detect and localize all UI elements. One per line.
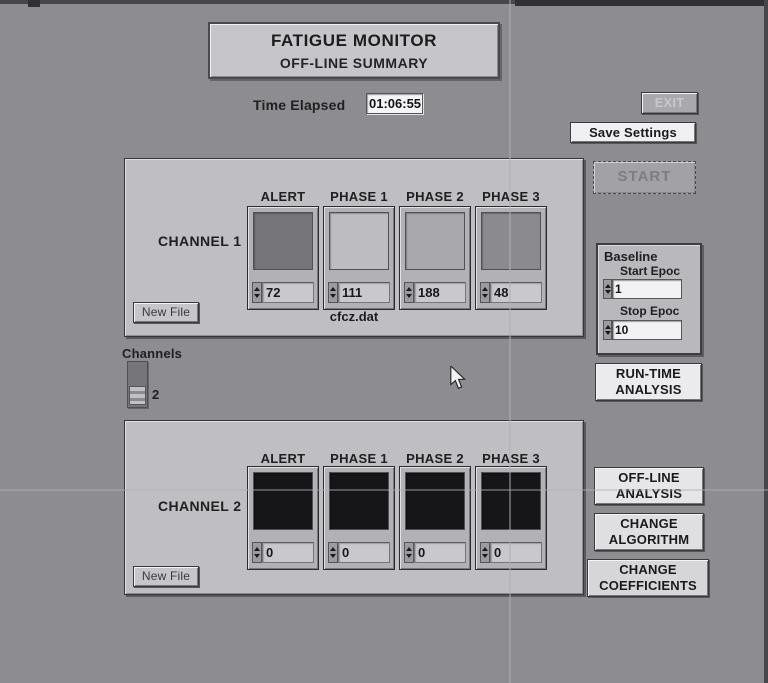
channels-slider-handle[interactable]: [129, 386, 146, 405]
spinner-up-icon[interactable]: [330, 547, 336, 551]
spinner-down-icon[interactable]: [254, 294, 260, 298]
title-box: FATIGUE MONITOR OFF-LINE SUMMARY: [208, 22, 500, 79]
screen-top-right-bar: [515, 0, 768, 6]
channel1-phase1-box: [329, 212, 389, 270]
channel2-alert-box: [253, 472, 313, 530]
spinner-up-icon[interactable]: [482, 287, 488, 291]
channel2-phase1-value[interactable]: 0: [338, 542, 390, 563]
channel2-phase1-box: [329, 472, 389, 530]
channel1-phase3-spinner[interactable]: 48: [480, 282, 542, 303]
channel1-phase2-spinner[interactable]: 188: [404, 282, 466, 303]
spinner-down-icon[interactable]: [254, 554, 260, 558]
spinner-down-icon[interactable]: [605, 290, 611, 294]
channel2-phase3-spinner[interactable]: 0: [480, 542, 542, 563]
channel2-phase3-value[interactable]: 0: [490, 542, 542, 563]
channel2-header-phase3: PHASE 3: [473, 451, 549, 466]
channel2-header-phase1: PHASE 1: [321, 451, 397, 466]
spinner-arrows[interactable]: [328, 282, 338, 303]
channels-label: Channels: [122, 346, 182, 361]
channel1-phase2-box: [405, 212, 465, 270]
channel2-alert-value[interactable]: 0: [262, 542, 314, 563]
spinner-up-icon[interactable]: [605, 325, 611, 329]
spinner-down-icon[interactable]: [482, 294, 488, 298]
spinner-up-icon[interactable]: [605, 284, 611, 288]
chann2-phase1-spinner[interactable]: 0: [328, 542, 390, 563]
channel1-header-phase2: PHASE 2: [397, 189, 473, 204]
spinner-up-icon[interactable]: [254, 287, 260, 291]
spinner-down-icon[interactable]: [605, 331, 611, 335]
channels-value: 2: [152, 387, 159, 402]
channel1-phase3-indicator: 48: [475, 206, 547, 310]
change-algorithm-button[interactable]: CHANGE ALGORITHM: [594, 513, 704, 551]
baseline-group: Baseline Start Epoc 1 Stop Epoc 10: [596, 243, 702, 355]
channel2-new-file-button[interactable]: New File: [133, 566, 199, 587]
app-title: FATIGUE MONITOR: [210, 31, 498, 51]
run-time-analysis-button[interactable]: RUN-TIME ANALYSIS: [595, 363, 702, 401]
spinner-arrows[interactable]: [480, 282, 490, 303]
spinner-down-icon[interactable]: [406, 554, 412, 558]
spinner-arrows[interactable]: [480, 542, 490, 563]
baseline-stop-label: Stop Epoc: [620, 304, 679, 318]
channel2-phase3-box: [481, 472, 541, 530]
channels-slider[interactable]: [127, 361, 148, 408]
channel1-phase1-value[interactable]: 111: [338, 282, 390, 303]
start-button[interactable]: START: [593, 161, 696, 194]
channel1-phase1-indicator: 111: [323, 206, 395, 310]
channel1-alert-box: [253, 212, 313, 270]
spinner-up-icon[interactable]: [406, 287, 412, 291]
spinner-up-icon[interactable]: [482, 547, 488, 551]
spinner-arrows[interactable]: [603, 279, 612, 299]
channel2-phase3-indicator: 0: [475, 466, 547, 570]
baseline-start-spinner[interactable]: 1: [603, 279, 682, 299]
channel1-filename: cfcz.dat: [125, 309, 583, 324]
channel2-alert-indicator: 0: [247, 466, 319, 570]
channel1-phase3-value[interactable]: 48: [490, 282, 542, 303]
baseline-title: Baseline: [604, 249, 657, 264]
channel1-panel: ALERT PHASE 1 PHASE 2 PHASE 3 CHANNEL 1 …: [124, 158, 584, 337]
channel2-phase2-spinner[interactable]: 0: [404, 542, 466, 563]
spinner-down-icon[interactable]: [482, 554, 488, 558]
baseline-start-value[interactable]: 1: [612, 279, 682, 299]
channel2-label: CHANNEL 2: [158, 498, 241, 514]
spinner-arrows[interactable]: [603, 320, 612, 340]
time-elapsed-label: Time Elapsed: [253, 97, 345, 113]
channel1-phase2-indicator: 188: [399, 206, 471, 310]
spinner-down-icon[interactable]: [406, 294, 412, 298]
channel2-phase1-indicator: 0: [323, 466, 395, 570]
spinner-arrows[interactable]: [404, 282, 414, 303]
screen-top-notch: [28, 0, 40, 7]
baseline-stop-value[interactable]: 10: [612, 320, 682, 340]
change-coefficients-button[interactable]: CHANGE COEFFICIENTS: [587, 559, 709, 597]
channel2-phase2-box: [405, 472, 465, 530]
exit-button[interactable]: EXIT: [641, 92, 698, 114]
channel1-alert-value[interactable]: 72: [262, 282, 314, 303]
channel1-phase1-spinner[interactable]: 111: [328, 282, 390, 303]
spinner-arrows[interactable]: [252, 282, 262, 303]
channel2-header-phase2: PHASE 2: [397, 451, 473, 466]
channel2-panel: ALERT PHASE 1 PHASE 2 PHASE 3 CHANNEL 2 …: [124, 420, 584, 595]
channel1-alert-spinner[interactable]: 72: [252, 282, 314, 303]
channel1-alert-indicator: 72: [247, 206, 319, 310]
spinner-arrows[interactable]: [252, 542, 262, 563]
channel2-header-alert: ALERT: [245, 451, 321, 466]
spinner-up-icon[interactable]: [406, 547, 412, 551]
channel1-header-phase1: PHASE 1: [321, 189, 397, 204]
channel2-phase2-value[interactable]: 0: [414, 542, 466, 563]
save-settings-button[interactable]: Save Settings: [570, 122, 696, 143]
app-subtitle: OFF-LINE SUMMARY: [210, 55, 498, 71]
screen-right-border: [764, 0, 768, 683]
spinner-up-icon[interactable]: [254, 547, 260, 551]
spinner-up-icon[interactable]: [330, 287, 336, 291]
spinner-down-icon[interactable]: [330, 554, 336, 558]
baseline-start-label: Start Epoc: [620, 264, 680, 278]
channel1-label: CHANNEL 1: [158, 233, 241, 249]
channel1-header-phase3: PHASE 3: [473, 189, 549, 204]
off-line-analysis-button[interactable]: OFF-LINE ANALYSIS: [594, 467, 704, 505]
mouse-cursor-icon: [448, 366, 468, 390]
channel2-phase2-indicator: 0: [399, 466, 471, 570]
baseline-stop-spinner[interactable]: 10: [603, 320, 682, 340]
channel1-header-alert: ALERT: [245, 189, 321, 204]
spinner-arrows[interactable]: [328, 542, 338, 563]
channel1-phase2-value[interactable]: 188: [414, 282, 466, 303]
time-elapsed-value: 01:06:55: [366, 93, 423, 114]
channel1-phase3-box: [481, 212, 541, 270]
spinner-down-icon[interactable]: [330, 294, 336, 298]
spinner-arrows[interactable]: [404, 542, 414, 563]
channel2-alert-spinner[interactable]: 0: [252, 542, 314, 563]
